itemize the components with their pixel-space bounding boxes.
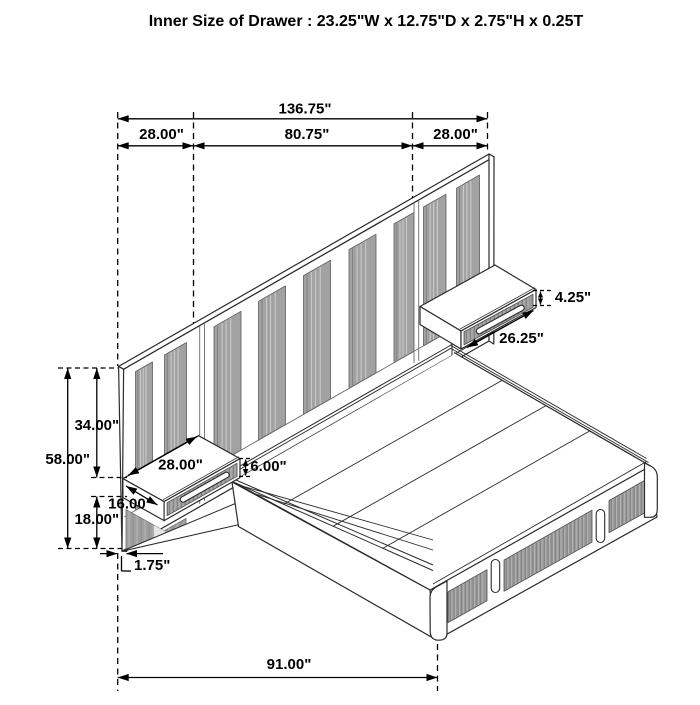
svg-text:91.00": 91.00" xyxy=(267,656,312,673)
svg-text:28.00": 28.00" xyxy=(139,126,184,143)
svg-text:58.00": 58.00" xyxy=(45,451,90,468)
svg-text:34.00": 34.00" xyxy=(74,417,119,434)
svg-text:1.75": 1.75" xyxy=(134,557,170,574)
svg-text:4.25": 4.25" xyxy=(555,289,591,306)
svg-text:28.00": 28.00" xyxy=(433,126,478,143)
svg-text:26.25": 26.25" xyxy=(499,330,544,347)
svg-text:28.00": 28.00" xyxy=(158,457,203,474)
svg-text:16.00": 16.00" xyxy=(108,496,153,513)
svg-text:6.00": 6.00" xyxy=(250,458,286,475)
svg-text:Inner Size of Drawer : 23.25"W: Inner Size of Drawer : 23.25"W x 12.75"D… xyxy=(149,13,584,30)
svg-text:80.75": 80.75" xyxy=(285,126,330,143)
svg-text:136.75": 136.75" xyxy=(279,101,332,118)
svg-text:18.00": 18.00" xyxy=(74,511,119,528)
